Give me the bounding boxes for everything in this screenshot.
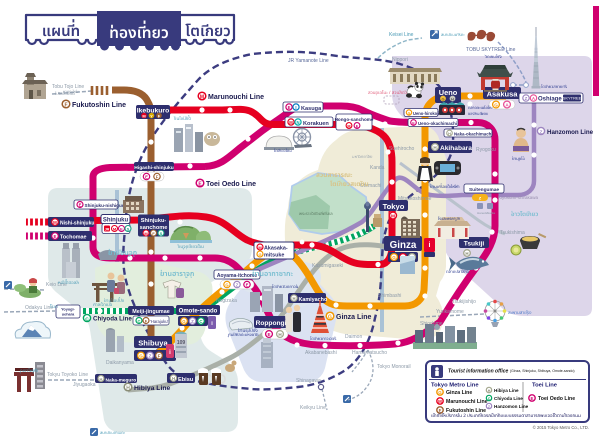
svg-text:Keikyu Line: Keikyu Line	[300, 405, 326, 411]
svg-text:Odakyu Line: Odakyu Line	[25, 305, 53, 311]
svg-text:Tokyu Toyoko Line: Tokyu Toyoko Line	[47, 372, 88, 378]
svg-text:Shinjuku: Shinjuku	[103, 218, 129, 224]
svg-text:Marunouchi Line: Marunouchi Line	[446, 399, 488, 405]
svg-text:Toei Line: Toei Line	[532, 383, 558, 389]
svg-text:Tourist information office: Tourist information office	[448, 369, 508, 375]
svg-text:Nippori: Nippori	[392, 57, 408, 63]
svg-text:H: H	[100, 377, 103, 382]
svg-text:E: E	[54, 234, 57, 239]
svg-text:Kanda: Kanda	[370, 165, 385, 171]
svg-text:G: G	[441, 97, 444, 102]
svg-text:Tokyo Metro Line: Tokyo Metro Line	[431, 383, 479, 389]
svg-text:Tobu Tojo Line: Tobu Tojo Line	[52, 84, 84, 90]
svg-text:S: S	[160, 231, 163, 236]
svg-text:N: N	[296, 120, 299, 125]
svg-text:Ginza Line: Ginza Line	[336, 314, 372, 321]
svg-text:JR Yamanote Line: JR Yamanote Line	[288, 58, 329, 64]
svg-text:Chiyoda Line: Chiyoda Line	[93, 316, 132, 323]
svg-text:Naka-meguro: Naka-meguro	[106, 377, 137, 383]
svg-text:Hongo-sanchome: Hongo-sanchome	[335, 117, 374, 122]
svg-text:F: F	[158, 354, 161, 359]
svg-text:Yurikamome: Yurikamome	[436, 309, 464, 315]
svg-text:Toei Oedo Line: Toei Oedo Line	[206, 181, 256, 188]
svg-text:G: G	[182, 319, 186, 324]
svg-text:M: M	[200, 94, 204, 100]
svg-text:M: M	[53, 220, 57, 225]
svg-text:H: H	[172, 376, 175, 381]
svg-text:G: G	[408, 111, 411, 115]
svg-text:(Ginza, Shinjuku, Shibuya, Omo: (Ginza, Shinjuku, Shibuya, Omote-sando)	[510, 369, 575, 373]
svg-text:H: H	[451, 97, 454, 102]
svg-text:uehara: uehara	[62, 313, 75, 317]
svg-text:H: H	[292, 296, 295, 301]
svg-text:© 2015 Tokyo Metro Co., LTD.: © 2015 Tokyo Metro Co., LTD.	[533, 425, 589, 430]
svg-text:E: E	[288, 105, 291, 110]
svg-text:Shinagawa: Shinagawa	[296, 378, 321, 384]
svg-text:F: F	[64, 102, 67, 108]
svg-text:Z: Z	[540, 129, 543, 135]
svg-text:E: E	[356, 125, 359, 129]
svg-text:Daimon: Daimon	[345, 334, 362, 340]
svg-text:Shimbashi: Shimbashi	[378, 293, 401, 299]
svg-text:Naka-okachimachi: Naka-okachimachi	[454, 132, 493, 137]
svg-text:Z: Z	[149, 354, 152, 359]
svg-text:Shinjuku-nishiguchi: Shinjuku-nishiguchi	[85, 203, 129, 208]
svg-text:Oshiage: Oshiage	[538, 97, 562, 103]
svg-text:H: H	[448, 132, 451, 136]
svg-text:Ginza Line: Ginza Line	[446, 390, 472, 396]
svg-text:Ueno-hirokoji: Ueno-hirokoji	[413, 111, 439, 116]
svg-text:JR: JR	[105, 227, 110, 231]
svg-text:Hamamatsucho: Hamamatsucho	[352, 350, 387, 356]
svg-text:Nishi-shinjuku: Nishi-shinjuku	[60, 221, 94, 227]
svg-text:Z: Z	[525, 96, 528, 101]
svg-text:M: M	[347, 125, 350, 129]
svg-text:Akabanebashi: Akabanebashi	[305, 350, 337, 356]
svg-text:M: M	[289, 120, 293, 125]
svg-text:Z: Z	[191, 319, 194, 324]
svg-text:Suehirocho: Suehirocho	[389, 146, 415, 152]
svg-text:Suitengumae: Suitengumae	[469, 187, 499, 193]
svg-text:Nogizaka: Nogizaka	[216, 298, 237, 304]
svg-text:TOBU SKYTREE Line: TOBU SKYTREE Line	[466, 47, 516, 53]
svg-text:M: M	[391, 214, 395, 220]
svg-text:Meiji-jingumae: Meiji-jingumae	[132, 309, 169, 315]
svg-text:Ginza: Ginza	[390, 240, 417, 251]
svg-text:Mitsukoshimae: Mitsukoshimae	[398, 196, 432, 202]
svg-text:G: G	[328, 314, 332, 320]
svg-text:Omote-sando: Omote-sando	[179, 309, 218, 315]
svg-text:Hibiya Line: Hibiya Line	[134, 385, 170, 392]
svg-text:Jiyugaoka: Jiyugaoka	[73, 382, 96, 388]
svg-text:M: M	[438, 399, 442, 404]
svg-text:E: E	[267, 332, 270, 337]
svg-text:E: E	[120, 227, 123, 232]
svg-text:Chiyoda Line: Chiyoda Line	[494, 396, 523, 401]
svg-text:Higashi-shinjuku: Higashi-shinjuku	[134, 165, 173, 171]
svg-text:mitsuke: mitsuke	[264, 253, 284, 259]
svg-text:Fukutoshin Line: Fukutoshin Line	[72, 102, 126, 109]
svg-text:G: G	[392, 255, 396, 260]
svg-text:Narita: Narita	[487, 211, 495, 215]
svg-text:H: H	[465, 251, 468, 256]
svg-text:G: G	[139, 354, 143, 359]
svg-text:i: i	[429, 242, 431, 249]
svg-text:Kamiyacho: Kamiyacho	[299, 297, 328, 303]
svg-text:G: G	[258, 252, 261, 257]
svg-text:G: G	[438, 390, 442, 395]
svg-text:E: E	[412, 122, 415, 126]
svg-text:Tsukiji: Tsukiji	[464, 241, 485, 248]
svg-text:Tsukishima: Tsukishima	[500, 230, 525, 236]
svg-text:Shibuya: Shibuya	[138, 339, 168, 348]
svg-text:S: S	[127, 227, 130, 232]
svg-text:SKYTREE: SKYTREE	[563, 96, 582, 101]
svg-text:Hanzomon Line: Hanzomon Line	[494, 404, 529, 409]
svg-text:E: E	[531, 396, 534, 401]
svg-text:I: I	[295, 105, 296, 110]
svg-text:E: E	[246, 283, 249, 288]
svg-text:Hibiya Line: Hibiya Line	[494, 388, 519, 393]
svg-text:Daikanyama: Daikanyama	[106, 360, 134, 366]
svg-text:C: C	[138, 319, 141, 324]
svg-text:Keisei Line: Keisei Line	[389, 32, 414, 38]
svg-text:G: G	[225, 283, 228, 288]
svg-text:G: G	[494, 103, 498, 108]
svg-text:Ebisu: Ebisu	[178, 377, 194, 383]
svg-text:Akihabara: Akihabara	[440, 145, 472, 152]
svg-text:Kasuga: Kasuga	[301, 106, 322, 112]
svg-text:Ueno-okachimachi: Ueno-okachimachi	[418, 121, 457, 126]
svg-text:Z: Z	[236, 283, 239, 288]
svg-text:Tsukijishijo: Tsukijishijo	[452, 299, 476, 305]
svg-text:H: H	[126, 385, 130, 391]
svg-text:Roppongi: Roppongi	[256, 320, 287, 327]
svg-text:Y: Y	[150, 114, 153, 119]
svg-text:Marunouchi Line: Marunouchi Line	[208, 94, 264, 101]
svg-text:Ryogoku: Ryogoku	[476, 147, 496, 153]
svg-text:Tochomae: Tochomae	[60, 235, 87, 241]
svg-text:C: C	[488, 397, 491, 401]
svg-text:E: E	[79, 203, 82, 208]
svg-text:Tokyo Monorail: Tokyo Monorail	[377, 364, 411, 370]
svg-text:Toei Oedo Line: Toei Oedo Line	[538, 396, 575, 402]
svg-text:Shinjuku-: Shinjuku-	[141, 218, 167, 224]
svg-text:Korakuen: Korakuen	[303, 121, 329, 127]
svg-text:109: 109	[177, 340, 186, 346]
svg-text:Aoyama-itchome: Aoyama-itchome	[217, 273, 258, 279]
svg-text:Kasumigaseki: Kasumigaseki	[312, 263, 343, 269]
svg-text:C: C	[85, 316, 89, 322]
svg-text:Hanzomon Line: Hanzomon Line	[547, 129, 594, 136]
svg-text:F: F	[156, 175, 159, 180]
svg-text:Kiyosumi-shirakawa: Kiyosumi-shirakawa	[498, 195, 539, 200]
svg-text:Tokyo: Tokyo	[383, 202, 405, 211]
svg-text:E: E	[145, 175, 148, 180]
svg-text:'Harajuku': 'Harajuku'	[150, 319, 169, 324]
svg-text:Fukutoshin Line: Fukutoshin Line	[446, 408, 486, 414]
svg-text:Akasaka-: Akasaka-	[264, 246, 288, 252]
svg-text:Yoyogi-: Yoyogi-	[61, 308, 75, 312]
svg-text:H: H	[488, 389, 491, 393]
